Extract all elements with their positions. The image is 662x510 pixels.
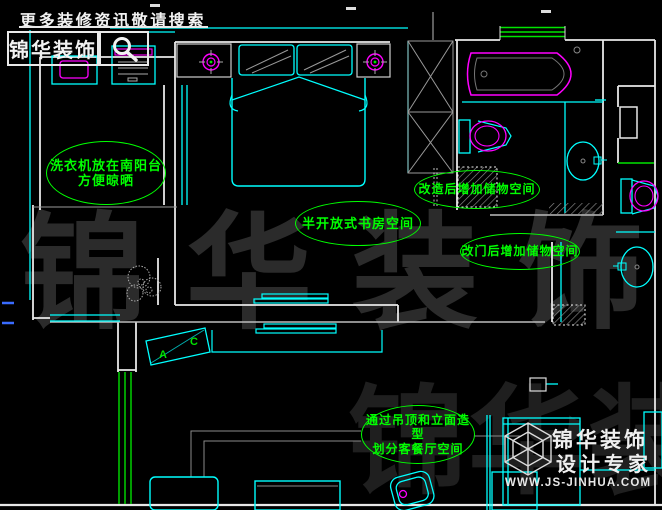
bathtub bbox=[468, 47, 581, 95]
ceiling-light-right bbox=[363, 50, 387, 74]
annotation-storage-1: 改造后增加储物空间 bbox=[414, 170, 540, 209]
window-top-green bbox=[500, 26, 565, 40]
annotation-line: 划分客餐厅空间 bbox=[372, 442, 463, 456]
ac-unit: A C bbox=[146, 328, 210, 365]
floorplan-screenshot: 锦华装饰 锦华装饰 bbox=[0, 0, 662, 510]
toilet-main-bath bbox=[459, 120, 511, 153]
logo-subtitle-text: 设计专家 bbox=[556, 448, 652, 477]
chair bbox=[389, 469, 436, 510]
blue-ticks bbox=[2, 303, 14, 323]
basin-main-bath bbox=[567, 142, 607, 180]
wardrobe-hatch bbox=[408, 41, 453, 173]
ac-letter-a: A bbox=[159, 349, 167, 361]
window-left-green bbox=[119, 372, 131, 504]
annotation-storage-2: 改门后增加储物空间 bbox=[460, 233, 580, 270]
annotation-study: 半开放式书房空间 bbox=[295, 201, 421, 246]
annotation-living-dining: 通过吊顶和立面造型 划分客餐厅空间 bbox=[361, 405, 475, 464]
storage-hatch-2 bbox=[553, 305, 585, 325]
logo-website-text: WWW.JS-JINHUA.COM bbox=[505, 477, 651, 489]
bedroom-bed bbox=[230, 45, 367, 186]
sliding-door-study bbox=[212, 294, 382, 352]
annotation-balcony-washer: 洗衣机放在南阳台 方便晾晒 bbox=[46, 141, 166, 205]
annotation-line: 改造后增加储物空间 bbox=[418, 182, 535, 196]
plant bbox=[127, 266, 161, 301]
ac-letter-c: C bbox=[190, 336, 198, 348]
magnifier-icon bbox=[107, 35, 141, 62]
annotation-line: 半开放式书房空间 bbox=[302, 216, 414, 231]
basin-second-bath bbox=[613, 247, 653, 287]
header-underline bbox=[19, 26, 208, 28]
header-brand-box: 锦华装饰 bbox=[7, 31, 99, 66]
annotation-line: 改门后增加储物空间 bbox=[461, 244, 578, 258]
floor-tile-hatch bbox=[549, 203, 603, 214]
logo-cube-icon bbox=[500, 421, 556, 479]
annotation-line: 方便晾晒 bbox=[78, 173, 134, 188]
door-second-bath bbox=[620, 107, 637, 138]
annotation-line: 洗衣机放在南阳台 bbox=[50, 158, 162, 173]
ceiling-light-left bbox=[199, 50, 223, 74]
header-brand-label: 锦华装饰 bbox=[9, 34, 97, 63]
toilet-second-bath bbox=[621, 179, 658, 214]
search-button[interactable] bbox=[99, 31, 149, 66]
annotation-line: 通过吊顶和立面造型 bbox=[362, 413, 474, 441]
